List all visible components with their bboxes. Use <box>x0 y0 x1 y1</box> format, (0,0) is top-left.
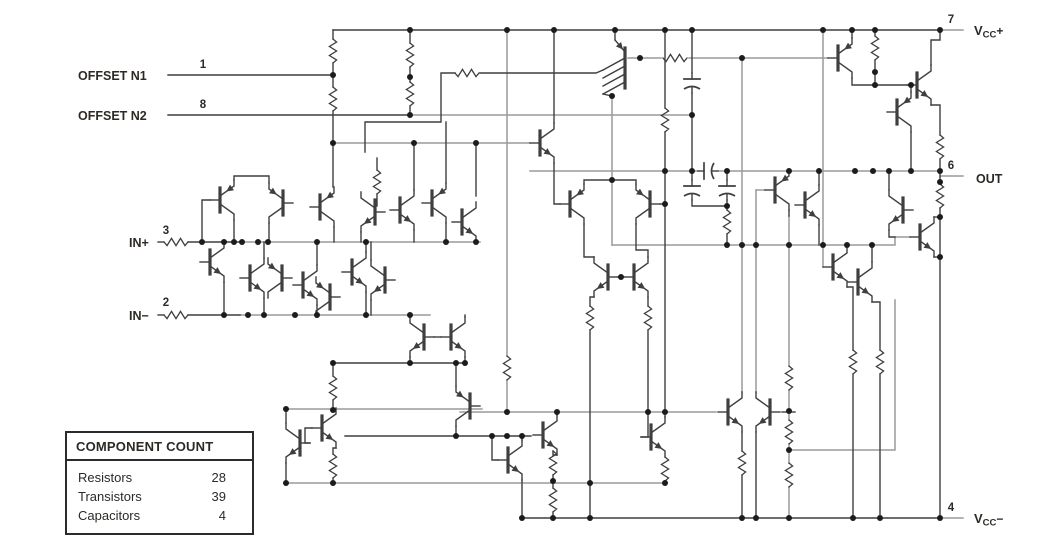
resistor-symbol <box>164 311 188 318</box>
junction-dot <box>363 312 369 318</box>
resistor-zigzag <box>936 184 943 208</box>
pin-label: VCC− <box>974 511 1003 529</box>
emitter-arrow-icon <box>455 342 463 349</box>
emitter-arrow-icon <box>438 188 446 195</box>
transistor-npn <box>390 190 414 230</box>
junction-dot <box>937 254 943 260</box>
resistor-zigzag <box>549 488 556 512</box>
wire <box>875 72 911 85</box>
transistor-pnp <box>210 180 234 220</box>
junction-dot <box>504 433 510 439</box>
junction-dot <box>937 168 943 174</box>
resistor-zigzag <box>329 39 336 63</box>
junction-dot <box>551 27 557 33</box>
junction-dot <box>245 312 251 318</box>
resistor-symbol <box>549 488 556 512</box>
upper-lead <box>361 192 375 208</box>
junction-dot <box>330 140 336 146</box>
junction-dot <box>618 274 624 280</box>
resistor-symbol <box>329 87 336 111</box>
junction-dot <box>330 360 336 366</box>
upper-lead <box>805 185 819 201</box>
wire <box>584 224 594 257</box>
junction-dot <box>786 168 792 174</box>
junction-dot <box>462 360 468 366</box>
upper-lead <box>462 202 476 218</box>
wire <box>202 200 210 242</box>
junction-dot <box>314 312 320 318</box>
pin-number: 6 <box>948 160 954 172</box>
upper-lead <box>508 440 522 456</box>
emitter-arrow-icon <box>892 215 900 222</box>
junction-dot <box>852 168 858 174</box>
junction-dot <box>724 203 730 209</box>
lower-lead <box>838 62 852 78</box>
emitter-arrow-icon <box>636 189 644 196</box>
resistor-zigzag <box>871 36 878 60</box>
resistor-zigzag <box>738 451 745 475</box>
junction-dot <box>645 409 651 415</box>
transistor-npn <box>293 265 317 305</box>
wire <box>305 428 312 443</box>
lower-lead <box>897 116 911 132</box>
upper-lead <box>451 317 465 333</box>
lower-lead <box>268 282 282 298</box>
resistor-zigzag <box>663 54 687 61</box>
junction-dot <box>473 140 479 146</box>
transistor-npn <box>624 257 648 297</box>
junction-dot <box>554 409 560 415</box>
junction-dot <box>473 239 479 245</box>
transistor-npn <box>641 417 665 457</box>
emitter-arrow-icon <box>544 148 552 155</box>
emitter-arrow-icon <box>862 287 870 294</box>
transistor-npn <box>441 317 465 357</box>
junction-dot <box>786 447 792 453</box>
transistors <box>200 38 934 480</box>
resistor-zigzag <box>503 356 510 380</box>
resistor-zigzag <box>661 108 668 132</box>
upper-lead <box>286 423 300 439</box>
junction-dot <box>886 168 892 174</box>
lower-lead <box>320 211 334 227</box>
transistor-npn <box>530 123 554 163</box>
pin-label: IN+ <box>129 236 149 250</box>
resistor-symbol <box>663 54 687 61</box>
resistor-symbol <box>785 463 792 487</box>
transistor-pnp <box>456 386 480 426</box>
junction-dot <box>844 242 850 248</box>
transistor-npn <box>795 185 819 225</box>
capacitor-symbol <box>698 163 718 179</box>
emitter-arrow-icon <box>781 175 789 182</box>
row-value: 28 <box>192 468 226 487</box>
resistor-zigzag <box>785 420 792 444</box>
junction-dot <box>662 201 668 207</box>
resistor-symbol <box>455 69 479 76</box>
junction-dot <box>587 480 593 486</box>
pin-number: 2 <box>163 297 169 309</box>
pin-offset-n2: OFFSET N28 <box>78 99 207 123</box>
pin-number: 7 <box>948 14 954 26</box>
capacitor-symbol <box>684 73 700 93</box>
resistor-symbol <box>164 238 188 245</box>
junction-dot <box>662 480 668 486</box>
junction-dot <box>937 27 943 33</box>
pin-number: 3 <box>163 225 169 237</box>
transistor-pnp <box>636 184 660 224</box>
junction-dot <box>786 242 792 248</box>
resistor-zigzag <box>723 210 730 234</box>
lower-lead <box>775 194 789 210</box>
transistor-npn <box>361 192 385 232</box>
junction-dot <box>519 433 525 439</box>
upper-lead <box>371 260 385 276</box>
component-count-body: Resistors28Transistors39Capacitors4 <box>67 461 252 533</box>
capacitor-symbol <box>684 180 700 200</box>
emitter-arrow-icon <box>226 185 234 192</box>
wire <box>612 237 910 245</box>
resistor-symbol <box>329 376 336 400</box>
transistor-pnp <box>603 40 625 94</box>
emitter-arrow-icon <box>809 210 817 217</box>
junction-dot <box>221 239 227 245</box>
pin-label: OUT <box>976 172 1003 186</box>
junction-dot <box>330 72 336 78</box>
junction-dot <box>637 55 643 61</box>
transistor-npn <box>200 242 224 282</box>
upper-lead <box>400 190 414 206</box>
upper-lead <box>210 242 224 258</box>
resistor-symbol <box>876 350 883 374</box>
upper-lead <box>352 252 366 268</box>
junction-dot <box>753 515 759 521</box>
emitter-arrow-icon <box>924 242 932 249</box>
resistor-zigzag <box>785 366 792 390</box>
upper-lead <box>634 257 648 273</box>
wire <box>234 176 269 183</box>
transistor-npn <box>756 392 780 432</box>
row-value: 4 <box>192 506 226 525</box>
junction-dot <box>869 242 875 248</box>
resistor-symbol <box>644 306 651 330</box>
table-row: Resistors28 <box>67 468 252 487</box>
transistor-npn <box>371 260 395 300</box>
pin-number: 1 <box>200 59 207 71</box>
transistor-npn <box>594 257 618 297</box>
wire <box>789 300 895 450</box>
upper-lead <box>728 392 742 408</box>
junction-dot <box>689 27 695 33</box>
emitter-arrow-icon <box>597 282 605 289</box>
resistor-zigzag <box>849 350 856 374</box>
emitter-arrow-icon <box>638 282 646 289</box>
emitter-arrow-icon <box>364 217 372 224</box>
transistor-npn <box>286 423 310 463</box>
lower-lead <box>432 207 446 223</box>
resistor-zigzag <box>785 463 792 487</box>
resistor-zigzag <box>876 350 883 374</box>
junction-dot <box>753 242 759 248</box>
upper-lead <box>917 65 931 81</box>
capacitor-symbol <box>719 180 735 200</box>
junction-dot <box>255 239 261 245</box>
table-row: Transistors39 <box>67 487 252 506</box>
wire <box>641 412 648 437</box>
wire <box>931 105 940 135</box>
junction-dot <box>724 242 730 248</box>
pin-vcc-minus: VCC−4 <box>948 502 1004 529</box>
junction-dot <box>261 312 267 318</box>
wire <box>872 302 880 350</box>
junction-dot <box>662 409 668 415</box>
resistor-zigzag <box>406 43 413 67</box>
upper-lead <box>889 190 903 206</box>
resistor-symbol <box>586 306 593 330</box>
resistor-symbol <box>406 43 413 67</box>
emitter-arrow-icon <box>903 97 911 104</box>
resistor-zigzag <box>661 457 668 481</box>
junction-dot <box>872 27 878 33</box>
junction-dot <box>363 239 369 245</box>
junction-dot <box>908 168 914 174</box>
transistor-pnp <box>316 277 340 317</box>
transistor-npn <box>823 247 847 287</box>
junction-dot <box>453 360 459 366</box>
emitter-arrow-icon <box>326 433 334 440</box>
transistor-npn <box>910 217 934 257</box>
lower-lead <box>636 208 650 224</box>
junction-dot <box>937 515 943 521</box>
lower-lead <box>269 207 283 223</box>
junction-dot <box>407 74 413 80</box>
pin-in-minus: IN−2 <box>129 297 169 323</box>
junction-dot <box>872 82 878 88</box>
emitter-arrow-icon <box>269 188 277 195</box>
junction-dot <box>407 312 413 318</box>
junction-dot <box>407 112 413 118</box>
transistor-pnp <box>828 38 852 78</box>
resistor-symbol <box>406 82 413 106</box>
emitter-arrow-icon <box>576 189 584 196</box>
junction-dot <box>292 312 298 318</box>
resistor-symbol <box>503 356 510 380</box>
pin-in-plus: IN+3 <box>129 225 169 250</box>
emitter-arrow-icon <box>404 215 412 222</box>
emitter-arrow-icon <box>837 272 845 279</box>
junction-dot <box>739 515 745 521</box>
emitter-arrow-icon <box>759 417 767 424</box>
wire <box>480 70 603 73</box>
wire <box>636 224 648 257</box>
emitter-arrow-icon <box>413 342 421 349</box>
junction-dot <box>609 177 615 183</box>
row-label: Resistors <box>78 468 132 487</box>
upper-lead <box>833 247 847 263</box>
pin-number: 8 <box>200 99 207 111</box>
junction-dot <box>407 360 413 366</box>
emitter-arrow-icon <box>356 277 364 284</box>
component-count-table: COMPONENT COUNT Resistors28Transistors39… <box>65 431 254 535</box>
resistor-symbol <box>785 420 792 444</box>
junction-dot <box>489 433 495 439</box>
schematic-page: OFFSET N11OFFSET N28IN+3IN−2VCC+7OUT6VCC… <box>0 0 1061 544</box>
junction-dot <box>283 480 289 486</box>
upper-lead <box>920 217 934 233</box>
wire <box>590 297 594 306</box>
junction-dot <box>820 242 826 248</box>
junction-dot <box>908 82 914 88</box>
resistor-zigzag <box>329 454 336 478</box>
pin-number: 4 <box>948 502 955 514</box>
junction-dot <box>739 55 745 61</box>
emitter-arrow-icon <box>268 263 276 270</box>
upper-lead <box>756 392 770 408</box>
junction-dot <box>872 69 878 75</box>
emitter-arrow-icon <box>254 283 262 290</box>
resistor-zigzag <box>644 306 651 330</box>
pin-offset-n1: OFFSET N11 <box>78 59 207 83</box>
resistor-zigzag <box>164 311 188 318</box>
transistor-pnp <box>310 187 334 227</box>
pin-out: OUT6 <box>948 160 1003 186</box>
resistor-zigzag <box>329 376 336 400</box>
wire <box>333 448 336 454</box>
resistor-symbol <box>373 170 380 194</box>
pin-label: IN− <box>129 309 149 323</box>
emitter-arrow-icon <box>547 440 555 447</box>
resistor-zigzag <box>936 135 943 159</box>
upper-lead <box>410 317 424 333</box>
resistor-symbol <box>661 457 668 481</box>
junction-dot <box>937 214 943 220</box>
transistor-npn <box>889 190 913 230</box>
resistor-symbol <box>723 210 730 234</box>
transistor-npn <box>312 408 336 448</box>
junction-dot <box>550 515 556 521</box>
junction-dot <box>689 168 695 174</box>
transistor-npn <box>452 202 476 242</box>
junction-dot <box>330 407 336 413</box>
junction-dot <box>739 242 745 248</box>
component-count-title: COMPONENT COUNT <box>67 433 252 461</box>
transistor-npn <box>240 258 264 298</box>
emitter-arrow-icon <box>732 417 740 424</box>
emitter-arrow-icon <box>844 43 852 50</box>
emitter-arrow-icon <box>326 192 334 199</box>
junction-dot <box>587 515 593 521</box>
junction-dot <box>265 239 271 245</box>
upper-lead <box>303 265 317 281</box>
emitter-arrow-icon <box>655 442 663 449</box>
resistor-symbol <box>329 39 336 63</box>
junction-dot <box>504 27 510 33</box>
pin-label: VCC+ <box>974 23 1003 41</box>
transistor-pnp <box>268 258 292 298</box>
wire <box>492 436 498 460</box>
wire <box>554 163 560 204</box>
pin-vcc-plus: VCC+7 <box>948 14 1004 41</box>
resistor-zigzag <box>373 170 380 194</box>
upper-lead <box>858 262 872 278</box>
junction-dot <box>877 515 883 521</box>
pin-label: OFFSET N1 <box>78 69 147 83</box>
transistor-npn <box>718 392 742 432</box>
junction-dot <box>453 433 459 439</box>
junction-dot <box>550 478 556 484</box>
resistor-symbol <box>936 184 943 208</box>
junction-dot <box>330 480 336 486</box>
transistor-pnp <box>560 184 584 224</box>
resistor-symbol <box>661 108 668 132</box>
junction-dot <box>662 27 668 33</box>
junction-dot <box>231 239 237 245</box>
transistor-npn <box>533 415 557 455</box>
junction-dot <box>849 27 855 33</box>
junction-dot <box>221 312 227 318</box>
resistor-symbol <box>738 451 745 475</box>
emitter-arrow-icon <box>374 285 382 292</box>
table-row: Capacitors4 <box>67 506 252 525</box>
junction-dot <box>443 239 449 245</box>
upper-lead <box>594 257 608 273</box>
resistor-zigzag <box>329 87 336 111</box>
junction-dot <box>314 239 320 245</box>
junction-dot <box>609 93 615 99</box>
transistor-npn <box>410 317 434 357</box>
emitter-arrow-icon <box>921 90 929 97</box>
junction-dot <box>662 168 668 174</box>
transistor-pnp <box>765 170 789 210</box>
wire <box>852 78 875 85</box>
resistor-symbol <box>329 454 336 478</box>
resistor-symbol <box>785 366 792 390</box>
junction-dot <box>689 112 695 118</box>
resistor-zigzag <box>455 69 479 76</box>
resistor-zigzag <box>586 306 593 330</box>
emitter-arrow-icon <box>316 282 324 289</box>
junction-dot <box>816 168 822 174</box>
junction-dot <box>870 168 876 174</box>
emitter-arrow-icon <box>466 227 474 234</box>
transistor-pnp <box>422 183 446 223</box>
emitter-arrow-icon <box>289 448 297 455</box>
upper-lead <box>651 417 665 433</box>
junction-dot <box>411 140 417 146</box>
junction-dot <box>820 27 826 33</box>
wire <box>847 287 853 350</box>
pin-label: OFFSET N2 <box>78 109 147 123</box>
junction-dot <box>283 406 289 412</box>
junction-dot <box>786 515 792 521</box>
junction-dot <box>199 239 205 245</box>
emitter-arrow-icon <box>214 267 222 274</box>
resistor-zigzag <box>164 238 188 245</box>
wire <box>889 230 895 237</box>
junction-dot <box>519 515 525 521</box>
junction-dot <box>850 515 856 521</box>
resistor-symbol <box>849 350 856 374</box>
emitter-arrow-icon <box>456 391 464 398</box>
junction-dot <box>612 27 618 33</box>
row-value: 39 <box>192 487 226 506</box>
upper-lead <box>543 415 557 431</box>
transistor-npn <box>848 262 872 302</box>
upper-lead <box>250 258 264 274</box>
junction-dot <box>724 168 730 174</box>
wire <box>931 30 940 65</box>
row-label: Capacitors <box>78 506 140 525</box>
